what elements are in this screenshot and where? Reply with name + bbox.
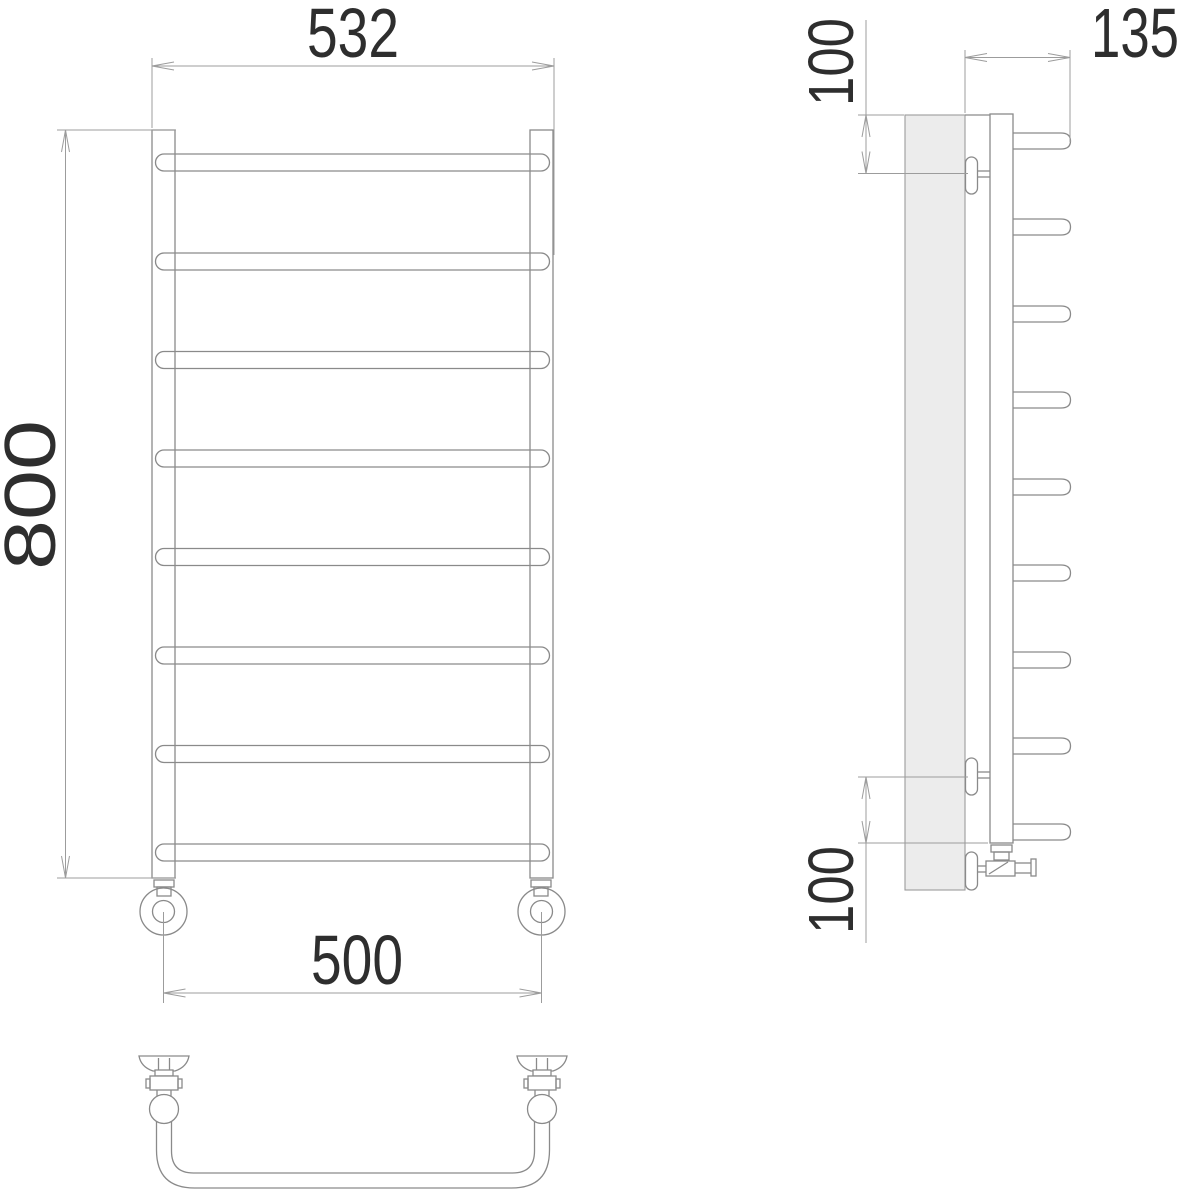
front-rung: [156, 450, 550, 467]
valve-outlet: [1031, 859, 1036, 876]
bracket-flange: [139, 1056, 189, 1071]
dim-label-side-bottom-offset: 100: [795, 846, 867, 934]
bottom-right-bracket: [517, 1056, 567, 1124]
front-right-post: [530, 130, 553, 878]
dim-label-front-width: 532: [307, 0, 399, 72]
drawing-svg: 532 800 500: [0, 0, 1200, 1200]
side-stub: [1013, 392, 1071, 408]
dim-front-width: 532: [152, 0, 554, 255]
wall-section: [905, 115, 965, 890]
dim-front-height: 800: [0, 130, 176, 878]
bottom-view: [139, 1056, 567, 1188]
bracket-nut: [150, 1076, 178, 1090]
side-stub: [1013, 738, 1071, 754]
bottom-left-bracket: [139, 1056, 189, 1124]
dim-front-mounts: 500: [164, 912, 542, 1003]
valve-wall-flange: [966, 852, 978, 890]
side-stub: [1013, 133, 1071, 149]
side-view: [905, 114, 1071, 890]
bracket-ball-joint: [150, 1095, 179, 1124]
side-top-bracket: [966, 157, 991, 194]
side-post: [990, 114, 1013, 843]
technical-drawing: 532 800 500: [0, 0, 1200, 1200]
side-stub: [1013, 652, 1071, 668]
dim-label-front-mounts: 500: [311, 921, 403, 999]
side-stub: [1013, 565, 1071, 581]
side-stub: [1013, 219, 1071, 235]
front-rung: [156, 154, 550, 171]
front-rung: [156, 844, 550, 861]
side-valve: [966, 845, 1037, 890]
front-view: [140, 130, 565, 935]
front-rung: [156, 647, 550, 664]
front-rung: [156, 549, 550, 566]
front-left-post: [152, 130, 175, 878]
front-rungs: [156, 154, 550, 861]
side-stub: [1013, 306, 1071, 322]
side-stub: [1013, 479, 1071, 495]
side-stubs: [1013, 133, 1071, 840]
front-rung: [156, 746, 550, 763]
side-stub: [1013, 824, 1071, 840]
dim-label-side-depth: 135: [1091, 0, 1179, 72]
dim-label-side-top-offset: 100: [795, 18, 867, 106]
side-bottom-bracket: [966, 758, 991, 795]
front-rung: [156, 253, 550, 270]
front-rung: [156, 352, 550, 369]
bottom-u-pipe: [157, 1121, 550, 1188]
dim-label-front-height: 800: [0, 420, 71, 570]
